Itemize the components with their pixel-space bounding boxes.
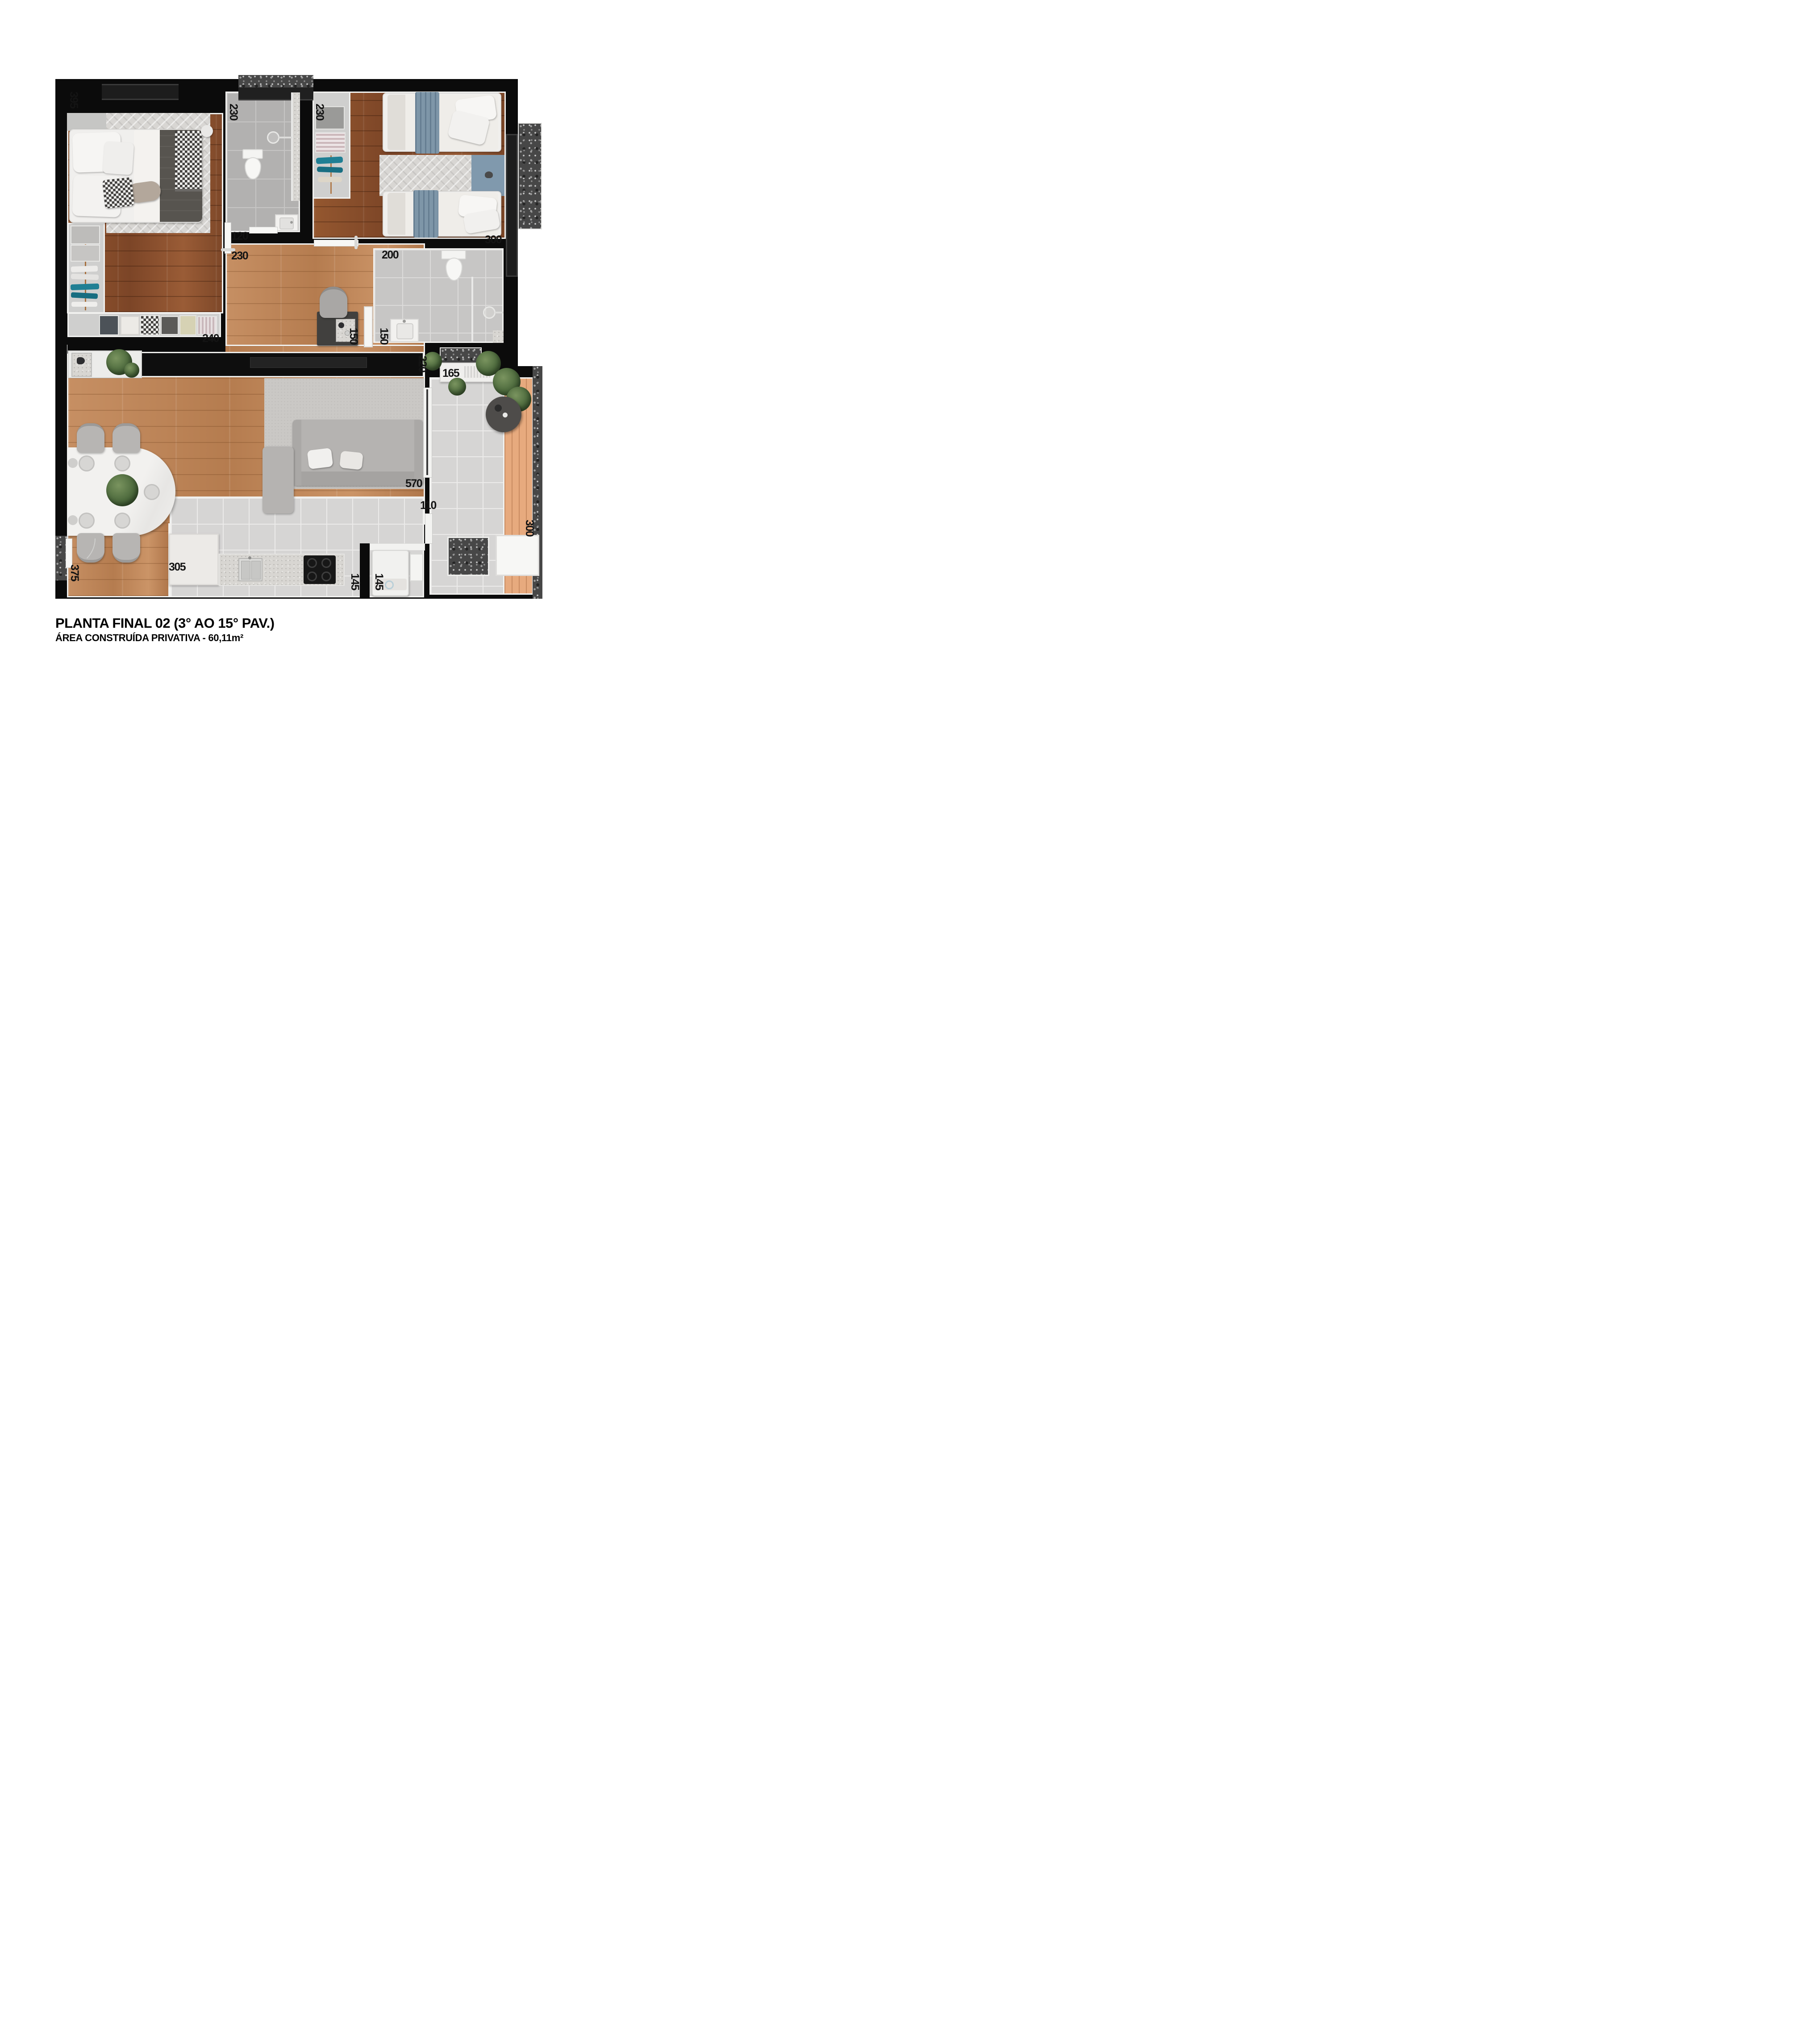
burner-1 [307,558,317,568]
bathroom1-door-leaf [249,227,278,234]
folded-clothes-olive [179,315,196,335]
bathroom1-shower-glass [291,92,293,201]
master-pillow-3 [103,141,134,175]
bed-top-blue-throw [415,92,439,154]
plan-title: PLANTA FINAL 02 (3° AO 15° PAV.) [55,615,275,631]
plate-top-1 [79,455,95,471]
desk-chair [320,287,347,318]
folded-clothes-navy [99,315,119,335]
window-bedroom2 [506,134,518,277]
shower-arm-bathroom1 [279,137,292,138]
sofa-pillow-1 [307,448,333,469]
sideboard-lamp [77,357,85,364]
floor-plan-canvas: 395 230 230 120 300 230 200 240 150 150 … [0,0,600,681]
dim-kitchen-depth: 145 [349,573,360,590]
bedroom2-door-leaf [314,240,358,246]
dim-balcony-depth: 300 [524,520,535,536]
dim-bathroom2-width: 200 [382,250,398,261]
teal-accessory-2 [317,167,343,173]
plan-subtitle: ÁREA CONSTRUÍDA PRIVATIVA - 60,11m² [55,632,243,644]
dim-linen-closet-width: 230 [314,104,325,120]
burner-2 [321,558,331,568]
empty-closet [496,535,539,576]
table-plate-dark [495,405,502,412]
master-headboard-panel [67,113,107,131]
bedroom2-door-handle [354,236,358,249]
basin-bathroom2 [396,323,413,339]
bowl-bottom [68,515,78,525]
sofa-armrest-left [292,420,301,486]
dim-hall-width: 230 [231,250,248,262]
granite-pillar-top-right [518,123,542,229]
master-throw-blanket [175,131,202,192]
wardrobe-hanger-white-2 [71,274,99,280]
bed-top-fold [387,95,405,150]
dining-chair-top-1 [77,423,104,453]
dining-chair-top-2 [112,423,140,453]
sofa-back-cushions [292,471,423,486]
master-accent-pillow [102,177,134,209]
plate-right [144,484,160,500]
dim-bathroom2-depth: 150 [378,328,389,344]
bathroom2-marble-niche [493,330,504,343]
sofa-pillow-2 [339,451,363,470]
dim-master-bedroom-width: 395 [68,92,79,108]
plate-bottom-1 [79,513,95,529]
dim-laundry-depth: 145 [373,573,384,590]
bed-bottom-blue-throw [413,190,438,238]
wardrobe-hanger-white-3 [71,302,97,307]
shower-head-icon-bathroom2 [483,306,496,319]
sink-bowl-left [241,561,250,580]
window-master-bedroom [102,84,179,100]
plate-top-2 [114,455,130,471]
dim-bedroom2-depth: 300 [485,234,501,246]
shower-arm-bathroom2 [495,312,504,313]
dim-kitchen-counter-width: 305 [169,562,185,573]
towel-striped [315,132,346,153]
burner-4 [321,571,331,581]
plate-bottom-2 [114,513,130,529]
window-bathroom1 [238,88,313,100]
dim-balcony-opening-width: 110 [420,500,436,511]
wall-kitchen-laundry [360,543,370,599]
dim-living-balcony-wall: 220 [417,355,428,372]
beige-accessory [318,177,342,182]
sink-bowl-right [251,561,261,580]
kitchen-faucet [248,556,251,559]
decanter-on-desk [338,322,344,328]
dim-desk-depth: 150 [348,328,359,344]
headphones-on-rug [485,171,493,178]
sofa-armrest-right [414,420,423,486]
master-side-stool [201,125,213,137]
bathroom2-door-leaf [364,306,373,347]
folded-clothes-dark [161,316,179,335]
sofa-chaise [262,446,294,513]
tv-screen [250,357,367,368]
bathroom2-shower-glass [471,277,473,342]
dining-chair-bottom-2 [112,533,140,563]
dim-sofa-width: 570 [405,478,422,489]
folded-clothes-pattern [140,315,160,335]
balcony-granite-counter [440,347,482,363]
folded-clothes-white [121,316,139,335]
wardrobe-shelf-box-2 [71,245,100,262]
bathroom1-marble-niche [293,92,300,201]
service-shaft-closet [447,537,489,576]
wardrobe-shelf-box-1 [71,225,100,244]
dim-bathroom1-depth: 120 [231,231,248,242]
kitchen-tall-cabinet [169,534,219,585]
burner-3 [307,571,317,581]
washer-knob [385,580,394,589]
laundry-shelf [370,543,425,551]
sliding-door-glass [426,389,428,475]
balcony-service-door [425,513,433,544]
table-cup-white [503,413,508,417]
faucet-dot-bathroom1 [290,221,293,224]
sideboard-art-frame [71,353,92,377]
bed-bottom-fold [387,193,405,235]
faucet-bathroom2 [403,320,406,323]
dim-balcony-planter-width: 165 [442,368,459,379]
sideboard-plant-sprig [124,363,139,378]
bowl-top [68,458,78,468]
balcony-plant-4 [448,378,466,396]
dim-bathroom1-width: 230 [228,104,239,120]
wardrobe-hanger-teal-1 [71,284,99,290]
wardrobe-hanger-white-1 [71,266,98,272]
dim-dining-depth: 375 [69,564,80,581]
dining-centerpiece-plant [106,474,138,506]
master-sheet-fold [134,130,162,222]
window-sill-granite [238,75,313,88]
laundry-tub [410,554,423,581]
dim-wardrobe-width: 240 [202,333,219,344]
shower-head-icon-bathroom1 [267,131,279,144]
